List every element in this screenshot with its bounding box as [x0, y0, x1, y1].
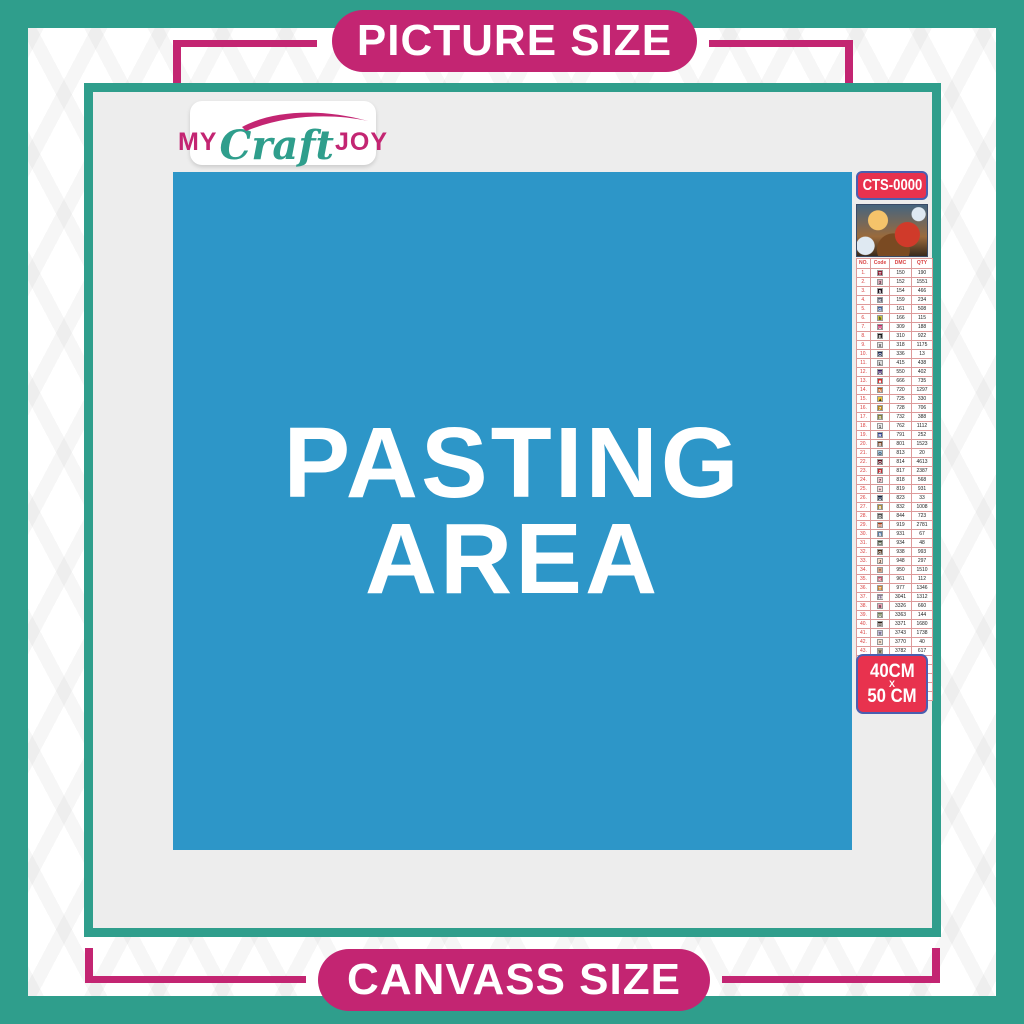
row-dmc: 309	[890, 323, 912, 332]
row-code: Y	[871, 629, 890, 638]
symbol-swatch-icon: J	[877, 558, 883, 564]
row-code: T	[871, 584, 890, 593]
row-dmc: 801	[890, 440, 912, 449]
row-dmc: 818	[890, 476, 912, 485]
row-dmc: 550	[890, 368, 912, 377]
table-row: 18.17621112	[857, 422, 933, 431]
symbol-swatch-icon: 2	[877, 468, 883, 474]
row-dmc: 961	[890, 575, 912, 584]
row-code: B	[871, 440, 890, 449]
symbol-swatch-icon: +	[877, 486, 883, 492]
row-qty: 1523	[912, 440, 933, 449]
row-qty: 1175	[912, 341, 933, 350]
row-qty: 723	[912, 512, 933, 521]
symbol-swatch-icon: ■	[877, 378, 883, 384]
table-row: 8.E310922	[857, 332, 933, 341]
row-dmc: 931	[890, 530, 912, 539]
table-row: 24.7818568	[857, 476, 933, 485]
row-dmc: 3743	[890, 629, 912, 638]
row-number: 15.	[857, 395, 871, 404]
row-dmc: 310	[890, 332, 912, 341]
row-qty: 706	[912, 404, 933, 413]
row-qty: 1551	[912, 278, 933, 287]
row-dmc: 919	[890, 521, 912, 530]
row-dmc: 154	[890, 287, 912, 296]
row-qty: 931	[912, 485, 933, 494]
row-code: ⊙	[871, 449, 890, 458]
table-row: 25.+819931	[857, 485, 933, 494]
symbol-swatch-icon: 5	[877, 531, 883, 537]
row-qty: 330	[912, 395, 933, 404]
row-number: 3.	[857, 287, 871, 296]
symbol-swatch-icon: U	[877, 612, 883, 618]
row-code: M	[871, 521, 890, 530]
table-row: 5.G161508	[857, 305, 933, 314]
row-code: X	[871, 341, 890, 350]
symbol-swatch-icon: Y	[877, 630, 883, 636]
brand-logo: MY Craft JOY	[190, 101, 376, 165]
row-qty: 466	[912, 287, 933, 296]
row-code: U	[871, 494, 890, 503]
table-row: 23.28172387	[857, 467, 933, 476]
row-code: *	[871, 566, 890, 575]
table-row: 28.D844723	[857, 512, 933, 521]
row-number: 7.	[857, 323, 871, 332]
row-dmc: 150	[890, 269, 912, 278]
row-number: 37.	[857, 593, 871, 602]
sku-badge: CTS-0000	[856, 171, 928, 200]
row-number: 16.	[857, 404, 871, 413]
row-dmc: 159	[890, 296, 912, 305]
canvass-size-label: CANVASS SIZE	[347, 955, 681, 1005]
row-qty: 190	[912, 269, 933, 278]
symbol-swatch-icon: T	[877, 270, 883, 276]
table-row: 30.593167	[857, 530, 933, 539]
row-code: L	[871, 359, 890, 368]
row-code: N	[871, 386, 890, 395]
row-qty: 144	[912, 611, 933, 620]
row-qty: 115	[912, 314, 933, 323]
table-row: 12.U550402	[857, 368, 933, 377]
symbol-swatch-icon: 13	[877, 594, 883, 600]
row-code: J	[871, 557, 890, 566]
symbol-swatch-icon: ⊙	[877, 450, 883, 456]
table-row: 6.h166115	[857, 314, 933, 323]
row-code: 5	[871, 287, 890, 296]
table-row: 40.⊟33711680	[857, 620, 933, 629]
row-code: 1	[871, 422, 890, 431]
symbol-swatch-icon: T	[877, 585, 883, 591]
row-dmc: 813	[890, 449, 912, 458]
brand-logo-text: MY Craft JOY	[190, 101, 376, 165]
row-number: 36.	[857, 584, 871, 593]
row-number: 38.	[857, 602, 871, 611]
canvas-size-line2: 50 CM	[867, 688, 916, 705]
row-qty: 568	[912, 476, 933, 485]
row-qty: 33	[912, 494, 933, 503]
row-qty: 13	[912, 350, 933, 359]
row-number: 10.	[857, 350, 871, 359]
table-row: 4.K159234	[857, 296, 933, 305]
canvas-size-badge: 40CM X 50 CM	[856, 654, 928, 714]
row-dmc: 161	[890, 305, 912, 314]
row-code: T	[871, 269, 890, 278]
row-qty: 1510	[912, 566, 933, 575]
row-dmc: 3371	[890, 620, 912, 629]
row-number: 41.	[857, 629, 871, 638]
row-code: 7	[871, 476, 890, 485]
row-code: U	[871, 368, 890, 377]
symbol-swatch-icon: N	[877, 387, 883, 393]
row-dmc: 336	[890, 350, 912, 359]
header-dmc: DMC	[890, 259, 912, 269]
table-row: 1.T150190	[857, 269, 933, 278]
row-qty: 922	[912, 332, 933, 341]
row-code: H	[871, 539, 890, 548]
row-code: U	[871, 611, 890, 620]
row-dmc: 3770	[890, 638, 912, 647]
row-code: S	[871, 413, 890, 422]
row-number: 11.	[857, 359, 871, 368]
symbol-swatch-icon: K	[877, 297, 883, 303]
table-row: 20.B8011523	[857, 440, 933, 449]
pasting-area-label-line2: AREA	[365, 511, 660, 607]
symbol-swatch-icon: ^	[877, 639, 883, 645]
symbol-swatch-icon: 1	[877, 423, 883, 429]
table-row: 9.X3181175	[857, 341, 933, 350]
symbol-swatch-icon: O	[877, 459, 883, 465]
table-row: 42.^377040	[857, 638, 933, 647]
table-header-row: NO. Code DMC QTY	[857, 259, 933, 269]
row-qty: 660	[912, 602, 933, 611]
table-row: 11.L415438	[857, 359, 933, 368]
table-row: 14.N7201297	[857, 386, 933, 395]
row-number: 42.	[857, 638, 871, 647]
symbol-swatch-icon: G	[877, 549, 883, 555]
row-dmc: 814	[890, 458, 912, 467]
row-dmc: 728	[890, 404, 912, 413]
row-qty: 508	[912, 305, 933, 314]
row-number: 12.	[857, 368, 871, 377]
row-qty: 112	[912, 575, 933, 584]
row-code: ▲	[871, 395, 890, 404]
logo-word-joy: JOY	[335, 128, 388, 157]
table-row: 10.O33613	[857, 350, 933, 359]
row-code: D	[871, 512, 890, 521]
table-row: 2.31521551	[857, 278, 933, 287]
row-number: 19.	[857, 431, 871, 440]
row-dmc: 819	[890, 485, 912, 494]
symbol-swatch-icon: 7	[877, 477, 883, 483]
picture-size-banner: PICTURE SIZE	[332, 10, 697, 72]
row-qty: 297	[912, 557, 933, 566]
table-row: 13.■666735	[857, 377, 933, 386]
poster-stage: MY Craft JOY PASTING AREA PICTURE SIZE C…	[0, 0, 1024, 1024]
row-code: 8	[871, 503, 890, 512]
row-number: 8.	[857, 332, 871, 341]
row-number: 39.	[857, 611, 871, 620]
row-dmc: 152	[890, 278, 912, 287]
row-qty: 388	[912, 413, 933, 422]
row-dmc: 934	[890, 539, 912, 548]
row-number: 25.	[857, 485, 871, 494]
row-code: K	[871, 575, 890, 584]
row-code: 13	[871, 593, 890, 602]
top-left-bracket-line	[173, 40, 317, 47]
logo-word-craft: Craft	[219, 131, 334, 161]
row-qty: 40	[912, 638, 933, 647]
row-qty: 438	[912, 359, 933, 368]
row-dmc: 762	[890, 422, 912, 431]
row-dmc: 666	[890, 377, 912, 386]
row-number: 14.	[857, 386, 871, 395]
table-row: 38.93326660	[857, 602, 933, 611]
row-number: 21.	[857, 449, 871, 458]
row-dmc: 3363	[890, 611, 912, 620]
table-row: 39.U3363144	[857, 611, 933, 620]
symbol-swatch-icon: 3	[877, 279, 883, 285]
top-right-bracket-line	[709, 40, 853, 47]
row-number: 6.	[857, 314, 871, 323]
row-dmc: 938	[890, 548, 912, 557]
table-row: 41.Y37431738	[857, 629, 933, 638]
row-qty: 1312	[912, 593, 933, 602]
row-qty: 1680	[912, 620, 933, 629]
row-dmc: 948	[890, 557, 912, 566]
symbol-swatch-icon: 8	[877, 504, 883, 510]
symbol-swatch-icon: B	[877, 441, 883, 447]
table-row: 33.J948297	[857, 557, 933, 566]
row-dmc: 725	[890, 395, 912, 404]
row-code: ⊟	[871, 620, 890, 629]
pasting-area-label-line1: PASTING	[283, 415, 741, 511]
row-number: 2.	[857, 278, 871, 287]
symbol-swatch-icon: K	[877, 576, 883, 582]
symbol-swatch-icon: G	[877, 306, 883, 312]
table-row: 3.5154466	[857, 287, 933, 296]
row-qty: 402	[912, 368, 933, 377]
symbol-swatch-icon: ⊟	[877, 621, 883, 627]
row-qty: 735	[912, 377, 933, 386]
row-dmc: 720	[890, 386, 912, 395]
row-code: O	[871, 458, 890, 467]
row-dmc: 3041	[890, 593, 912, 602]
bottom-left-bracket-line	[85, 976, 306, 983]
row-code: 3	[871, 278, 890, 287]
symbol-swatch-icon: S	[877, 414, 883, 420]
row-number: 31.	[857, 539, 871, 548]
table-row: 26.U82333	[857, 494, 933, 503]
row-qty: 1008	[912, 503, 933, 512]
row-code: 5	[871, 530, 890, 539]
table-row: 16.7728706	[857, 404, 933, 413]
row-number: 34.	[857, 566, 871, 575]
row-qty: 48	[912, 539, 933, 548]
dmc-table-body: 1.T1501902.315215513.51544664.K1592345.G…	[857, 269, 933, 701]
header-code: Code	[871, 259, 890, 269]
row-dmc: 3326	[890, 602, 912, 611]
table-row: 19.R791252	[857, 431, 933, 440]
row-number: 5.	[857, 305, 871, 314]
symbol-swatch-icon: L	[877, 360, 883, 366]
symbol-swatch-icon: 9	[877, 603, 883, 609]
sku-code: CTS-0000	[862, 177, 922, 195]
row-qty: 20	[912, 449, 933, 458]
table-row: 35.K961112	[857, 575, 933, 584]
row-code: O	[871, 350, 890, 359]
row-number: 40.	[857, 620, 871, 629]
table-row: 27.88321008	[857, 503, 933, 512]
symbol-swatch-icon: h	[877, 315, 883, 321]
symbol-swatch-icon: D	[877, 513, 883, 519]
row-number: 23.	[857, 467, 871, 476]
row-code: K	[871, 296, 890, 305]
row-number: 4.	[857, 296, 871, 305]
row-number: 26.	[857, 494, 871, 503]
bottom-left-bracket-arm	[85, 948, 93, 983]
bottom-right-bracket-line	[722, 976, 940, 983]
row-number: 32.	[857, 548, 871, 557]
row-qty: 1738	[912, 629, 933, 638]
row-number: 24.	[857, 476, 871, 485]
row-number: 29.	[857, 521, 871, 530]
table-row: 7.U309188	[857, 323, 933, 332]
row-qty: 252	[912, 431, 933, 440]
row-code: 7	[871, 404, 890, 413]
symbol-swatch-icon: M	[877, 522, 883, 528]
table-row: 32.G938993	[857, 548, 933, 557]
header-qty: QTY	[912, 259, 933, 269]
symbol-swatch-icon: U	[877, 369, 883, 375]
row-number: 18.	[857, 422, 871, 431]
row-dmc: 166	[890, 314, 912, 323]
row-dmc: 817	[890, 467, 912, 476]
symbol-swatch-icon: E	[877, 333, 883, 339]
row-number: 13.	[857, 377, 871, 386]
row-qty: 993	[912, 548, 933, 557]
canvas-size-line1: 40CM	[870, 663, 915, 680]
table-row: 17.S732388	[857, 413, 933, 422]
row-number: 17.	[857, 413, 871, 422]
row-dmc: 318	[890, 341, 912, 350]
row-number: 30.	[857, 530, 871, 539]
symbol-swatch-icon: R	[877, 432, 883, 438]
row-number: 1.	[857, 269, 871, 278]
symbol-swatch-icon: X	[877, 342, 883, 348]
header-no: NO.	[857, 259, 871, 269]
symbol-swatch-icon: U	[877, 324, 883, 330]
row-code: ^	[871, 638, 890, 647]
row-dmc: 977	[890, 584, 912, 593]
symbol-swatch-icon: *	[877, 567, 883, 573]
row-dmc: 732	[890, 413, 912, 422]
row-number: 28.	[857, 512, 871, 521]
symbol-swatch-icon: ▲	[877, 396, 883, 402]
table-row: 21.⊙81320	[857, 449, 933, 458]
row-qty: 2387	[912, 467, 933, 476]
table-row: 36.T9771346	[857, 584, 933, 593]
logo-word-my: MY	[178, 128, 218, 157]
table-row: 37.1330411312	[857, 593, 933, 602]
symbol-swatch-icon: O	[877, 351, 883, 357]
row-code: 2	[871, 467, 890, 476]
row-number: 27.	[857, 503, 871, 512]
table-row: 15.▲725330	[857, 395, 933, 404]
table-row: 29.M9192781	[857, 521, 933, 530]
symbol-swatch-icon: U	[877, 495, 883, 501]
symbol-swatch-icon: 5	[877, 288, 883, 294]
table-row: 31.H93448	[857, 539, 933, 548]
bottom-right-bracket-arm	[932, 948, 940, 983]
row-code: +	[871, 485, 890, 494]
row-code: h	[871, 314, 890, 323]
row-code: G	[871, 548, 890, 557]
table-row: 34.*9501510	[857, 566, 933, 575]
row-dmc: 415	[890, 359, 912, 368]
row-qty: 1112	[912, 422, 933, 431]
table-row: 22.O8144613	[857, 458, 933, 467]
product-thumbnail-image	[856, 204, 928, 257]
row-code: E	[871, 332, 890, 341]
dmc-table-header: NO. Code DMC QTY	[857, 259, 933, 269]
row-number: 22.	[857, 458, 871, 467]
row-code: 9	[871, 602, 890, 611]
row-number: 33.	[857, 557, 871, 566]
row-number: 9.	[857, 341, 871, 350]
row-qty: 67	[912, 530, 933, 539]
canvass-size-banner: CANVASS SIZE	[318, 949, 710, 1011]
pasting-area: PASTING AREA	[173, 172, 852, 850]
row-dmc: 950	[890, 566, 912, 575]
row-qty: 4613	[912, 458, 933, 467]
row-qty: 2781	[912, 521, 933, 530]
row-qty: 188	[912, 323, 933, 332]
symbol-swatch-icon: 7	[877, 405, 883, 411]
row-code: R	[871, 431, 890, 440]
picture-size-label: PICTURE SIZE	[357, 16, 672, 66]
row-number: 35.	[857, 575, 871, 584]
symbol-swatch-icon: V	[877, 648, 883, 654]
row-qty: 234	[912, 296, 933, 305]
row-qty: 1346	[912, 584, 933, 593]
row-code: ■	[871, 377, 890, 386]
row-dmc: 832	[890, 503, 912, 512]
symbol-swatch-icon: H	[877, 540, 883, 546]
row-number: 20.	[857, 440, 871, 449]
row-dmc: 791	[890, 431, 912, 440]
row-dmc: 823	[890, 494, 912, 503]
dmc-color-table: NO. Code DMC QTY 1.T1501902.315215513.51…	[856, 258, 933, 701]
row-qty: 1297	[912, 386, 933, 395]
row-code: G	[871, 305, 890, 314]
row-code: U	[871, 323, 890, 332]
row-dmc: 844	[890, 512, 912, 521]
